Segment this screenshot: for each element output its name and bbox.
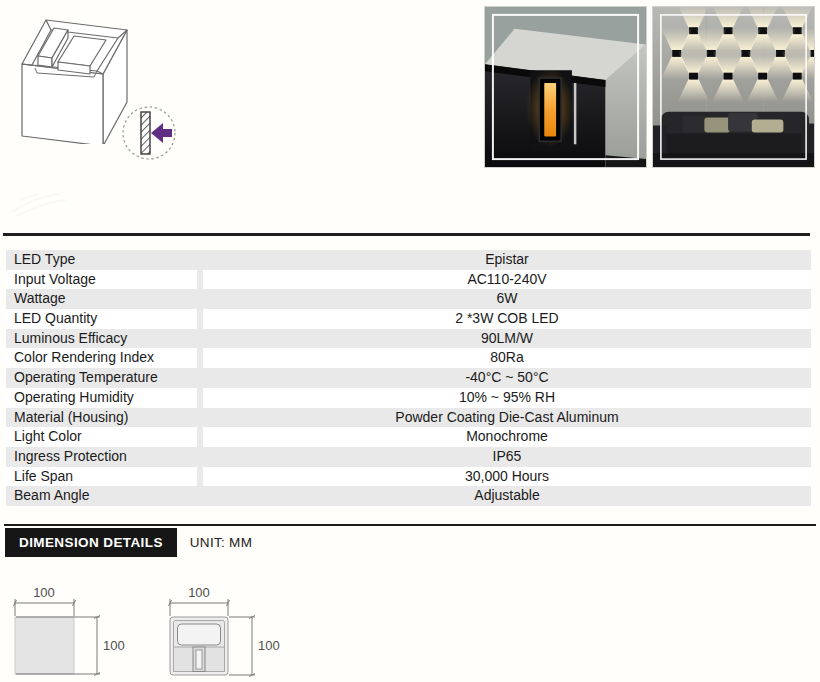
spec-label: Input Voltage xyxy=(6,270,197,290)
faint-watermark xyxy=(8,186,80,218)
dimension-unit-label: UNIT: MM xyxy=(190,535,252,550)
spec-value: 30,000 Hours xyxy=(203,467,811,487)
spec-row: Beam AngleAdjustable xyxy=(6,486,811,506)
spec-label: Operating Temperature xyxy=(6,368,197,388)
spec-row: LED Quantity2 *3W COB LED xyxy=(6,309,811,329)
spec-label: Ingress Protection xyxy=(6,447,197,467)
spec-label: LED Type xyxy=(6,250,197,270)
spec-label: Life Span xyxy=(6,467,197,487)
arrow-left-icon xyxy=(151,123,172,143)
spec-value: Adjustable xyxy=(203,486,811,506)
spec-value: 2 *3W COB LED xyxy=(203,309,811,329)
spec-label: Color Rendering Index xyxy=(6,348,197,368)
spec-row: Input VoltageAC110-240V xyxy=(6,270,811,290)
product-photo-wall-installed xyxy=(652,6,815,168)
spec-label: Light Color xyxy=(6,427,197,447)
spec-label: Luminous Efficacy xyxy=(6,329,197,349)
spec-label: Operating Humidity xyxy=(6,388,197,408)
spec-value: Powder Coating Die-Cast Aluminum xyxy=(203,408,811,428)
dimension-drawings: 100 100 100 100 xyxy=(10,583,310,682)
product-photo-closeup xyxy=(484,6,647,168)
spec-value: AC110-240V xyxy=(203,270,811,290)
spec-row: Material (Housing)Powder Coating Die-Cas… xyxy=(6,408,811,428)
spec-value: -40°C ~ 50°C xyxy=(203,368,811,388)
spec-label: Beam Angle xyxy=(6,486,197,506)
spec-label: Material (Housing) xyxy=(6,408,197,428)
spec-table: LED TypeEpistar Input VoltageAC110-240V … xyxy=(6,250,811,506)
spec-value: IP65 xyxy=(203,447,811,467)
spec-value: Monochrome xyxy=(203,427,811,447)
spec-row: LED TypeEpistar xyxy=(6,250,811,270)
spec-row: Light ColorMonochrome xyxy=(6,427,811,447)
spec-row: Luminous Efficacy90LM/W xyxy=(6,329,811,349)
spec-value: 80Ra xyxy=(203,348,811,368)
wall-mount-arrow-icon xyxy=(120,103,180,163)
spec-row: Operating Humidity10% ~ 95% RH xyxy=(6,388,811,408)
spec-label: Wattage xyxy=(6,289,197,309)
side-view-width-label: 100 xyxy=(33,585,55,600)
divider-thick xyxy=(3,233,810,236)
divider-thin xyxy=(4,524,816,526)
front-view-width-label: 100 xyxy=(188,585,210,600)
spec-value: 90LM/W xyxy=(203,329,811,349)
spec-value: Epistar xyxy=(203,250,811,270)
spec-row: Color Rendering Index80Ra xyxy=(6,348,811,368)
spec-label: LED Quantity xyxy=(6,309,197,329)
side-view-height-label: 100 xyxy=(103,638,125,653)
front-view-height-label: 100 xyxy=(258,638,280,653)
spec-row: Life Span30,000 Hours xyxy=(6,467,811,487)
spec-row: Operating Temperature-40°C ~ 50°C xyxy=(6,368,811,388)
spec-value: 10% ~ 95% RH xyxy=(203,388,811,408)
dimension-details-title: DIMENSION DETAILS xyxy=(5,528,177,557)
spec-row: Ingress ProtectionIP65 xyxy=(6,447,811,467)
dimension-details-header: DIMENSION DETAILS UNIT: MM xyxy=(5,528,252,557)
isometric-cube-drawing-icon xyxy=(8,4,128,144)
spec-row: Wattage6W xyxy=(6,289,811,309)
spec-sheet-page: LED TypeEpistar Input VoltageAC110-240V … xyxy=(0,0,820,682)
wall-section-bar xyxy=(141,112,150,154)
spec-value: 6W xyxy=(203,289,811,309)
